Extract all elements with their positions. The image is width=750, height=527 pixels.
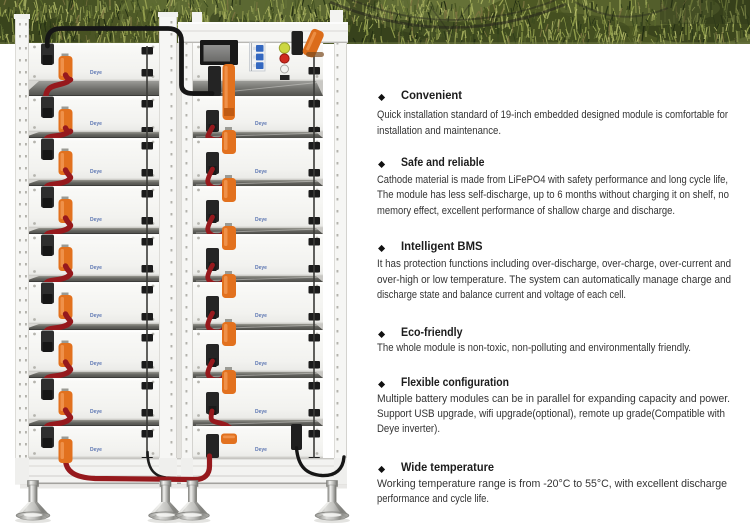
svg-text:Deye: Deye	[255, 409, 267, 415]
svg-text:Deye: Deye	[255, 361, 267, 367]
svg-text:Deye: Deye	[255, 217, 267, 223]
svg-text:Deye: Deye	[90, 70, 102, 76]
svg-text:Deye: Deye	[255, 121, 267, 127]
svg-text:Deye: Deye	[90, 169, 102, 175]
svg-text:Deye: Deye	[90, 217, 102, 223]
svg-text:Deye: Deye	[90, 361, 102, 367]
svg-text:Deye: Deye	[255, 313, 267, 319]
svg-text:Deye: Deye	[255, 169, 267, 175]
svg-text:Deye: Deye	[90, 265, 102, 271]
svg-text:Deye: Deye	[255, 265, 267, 271]
svg-text:Deye: Deye	[255, 447, 267, 453]
svg-text:Deye: Deye	[90, 447, 102, 453]
svg-text:Deye: Deye	[90, 409, 102, 415]
svg-text:Deye: Deye	[90, 121, 102, 127]
svg-text:Deye: Deye	[90, 313, 102, 319]
